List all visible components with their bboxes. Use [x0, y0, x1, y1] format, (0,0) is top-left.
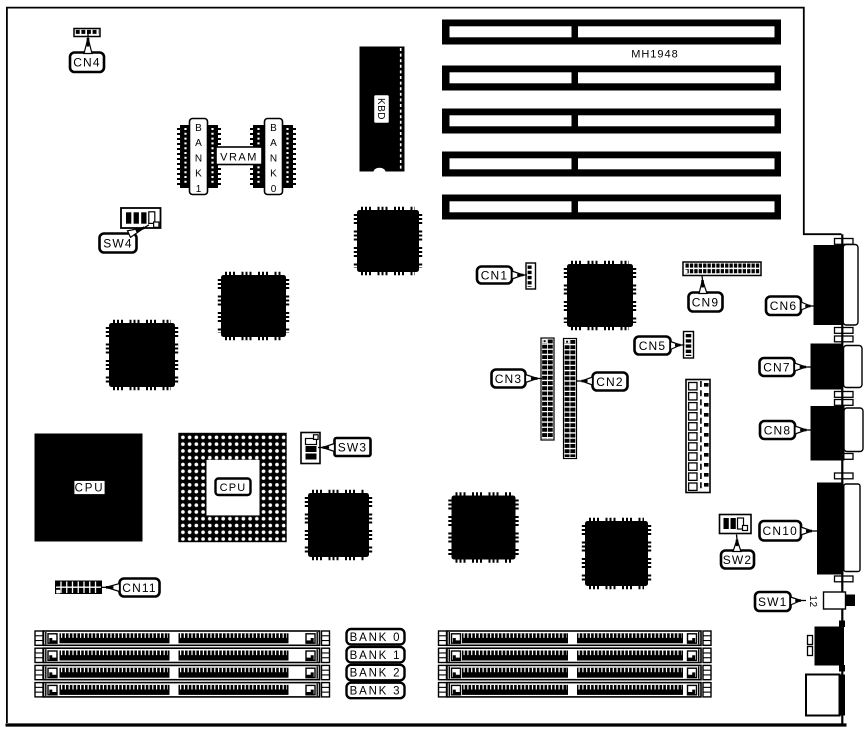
svg-text:SW3: SW3: [338, 440, 368, 454]
svg-text:BANK 3: BANK 3: [350, 686, 402, 698]
svg-text:N: N: [270, 153, 277, 164]
svg-text:VRAM: VRAM: [220, 152, 258, 164]
svg-text:A: A: [195, 138, 202, 149]
svg-text:B: B: [195, 123, 202, 134]
svg-text:K: K: [270, 169, 277, 180]
svg-text:CN10: CN10: [763, 524, 798, 538]
svg-text:B: B: [270, 123, 277, 134]
svg-text:CN9: CN9: [692, 295, 720, 309]
svg-text:SW2: SW2: [723, 553, 753, 567]
svg-text:CPU: CPU: [75, 483, 105, 495]
svg-text:CN7: CN7: [763, 360, 791, 374]
svg-text:CN3: CN3: [495, 372, 523, 386]
svg-text:CN2: CN2: [596, 375, 624, 389]
svg-text:BANK 2: BANK 2: [350, 668, 402, 680]
svg-text:N: N: [195, 153, 202, 164]
svg-text:SW4: SW4: [103, 236, 133, 250]
svg-text:MH1948: MH1948: [631, 49, 679, 61]
svg-text:CN5: CN5: [639, 339, 667, 353]
svg-text:0: 0: [271, 184, 277, 195]
svg-text:12: 12: [807, 595, 818, 607]
svg-text:CN4: CN4: [73, 56, 101, 70]
svg-text:CPU: CPU: [220, 482, 247, 494]
svg-text:BANK 0: BANK 0: [350, 632, 402, 644]
svg-text:A: A: [270, 138, 277, 149]
svg-text:KBD: KBD: [375, 98, 386, 120]
svg-text:CN1: CN1: [481, 268, 509, 282]
svg-text:SW1: SW1: [758, 595, 788, 609]
svg-text:CN8: CN8: [764, 423, 792, 437]
svg-text:K: K: [195, 169, 202, 180]
svg-text:CN6: CN6: [770, 299, 798, 313]
svg-text:CN11: CN11: [122, 581, 157, 595]
svg-text:BANK 1: BANK 1: [350, 650, 402, 662]
svg-text:1: 1: [196, 184, 202, 195]
